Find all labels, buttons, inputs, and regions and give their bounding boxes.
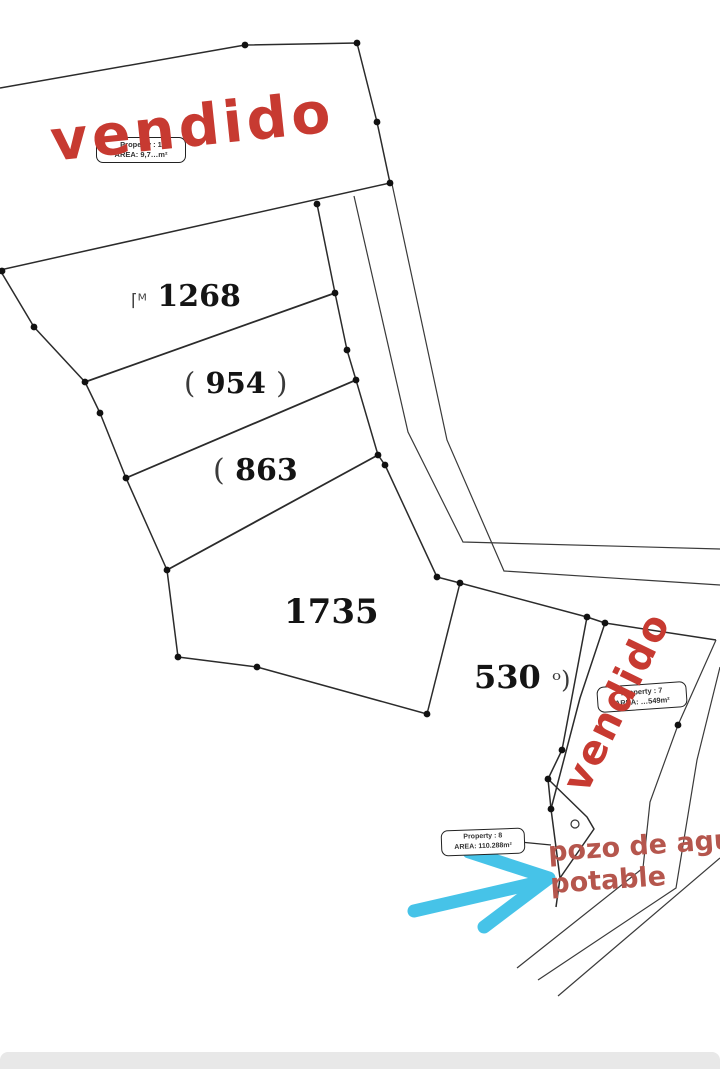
water-well-note: pozo de agua potable xyxy=(547,823,720,901)
parcel-1735-number: 1735 xyxy=(284,592,379,632)
parcel-1268-number: ⌈ᴹ 1268 xyxy=(131,279,241,314)
property-8-label: Property : 8 AREA: 110.288m² xyxy=(441,828,526,857)
parcel-530-number: 530 ᵒ) xyxy=(474,658,571,696)
parcel-954-number: ( 954 ) xyxy=(184,366,287,400)
blue-arrow-icon xyxy=(414,852,549,927)
well-marker-circle xyxy=(571,820,579,828)
parcel-863-number: ( 863 xyxy=(213,453,298,488)
label-box-icon: ⌈ᴹ xyxy=(131,291,147,311)
parcel-boundaries xyxy=(0,43,716,907)
bottom-ui-bar xyxy=(0,1052,720,1069)
property-8-area: AREA: 110.288m² xyxy=(448,841,518,853)
cadastral-map-screenshot: Property : 1 AREA: 9,7…m² Property : 7 A… xyxy=(0,0,720,1069)
